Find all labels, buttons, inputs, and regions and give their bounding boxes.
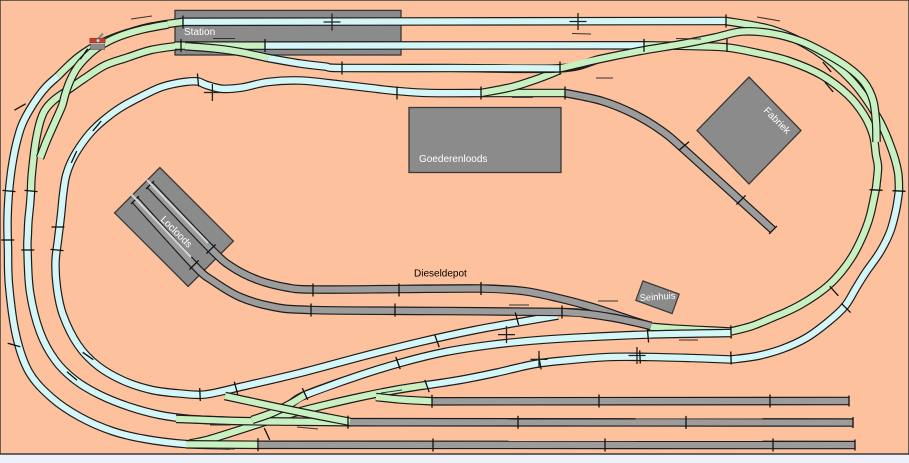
svg-text:Goederenloods: Goederenloods <box>419 154 487 165</box>
svg-text:Dieseldepot: Dieseldepot <box>414 269 467 280</box>
svg-text:Station: Station <box>184 27 215 38</box>
